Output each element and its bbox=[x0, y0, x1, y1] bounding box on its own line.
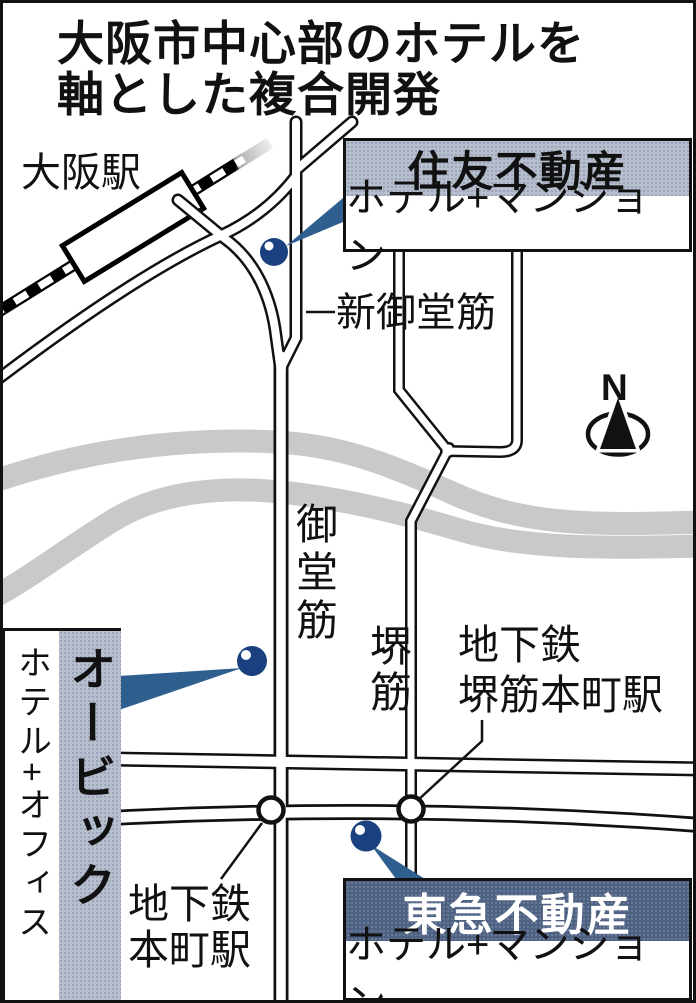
hommachi-line1: 地下鉄 bbox=[128, 881, 251, 927]
sakaisuji-label: 堺筋 bbox=[363, 624, 413, 716]
obic-pin bbox=[237, 646, 267, 676]
hommachi-line2: 本町駅 bbox=[128, 927, 251, 973]
sakaisuji-hommachi-station-label: 地下鉄 堺筋本町駅 bbox=[458, 620, 663, 720]
obic-company: オービック bbox=[59, 631, 121, 1000]
obic-project: ホテル+オフィス bbox=[5, 631, 59, 1000]
sakaisuji-hommachi-line2: 堺筋本町駅 bbox=[458, 670, 663, 720]
midosuji-label: 御堂筋 bbox=[289, 502, 339, 646]
tokyu-pin-highlight bbox=[355, 825, 365, 835]
shin-midosuji-label: 新御堂筋 bbox=[336, 290, 496, 337]
sumitomo-pin bbox=[260, 238, 288, 266]
river-lower-branch bbox=[0, 490, 696, 598]
map-infographic: 大阪市中心部のホテルを 軸とした複合開発 大阪駅 新御堂筋 御堂筋 堺筋 地下鉄… bbox=[0, 0, 696, 1003]
hommachi-station-label: 地下鉄 本町駅 bbox=[128, 881, 251, 974]
obic-pin-highlight bbox=[241, 650, 251, 660]
railway-fade bbox=[236, 126, 292, 182]
tokyu-pin bbox=[351, 821, 382, 852]
title-line2: 軸とした複合開発 bbox=[57, 69, 585, 120]
river bbox=[0, 441, 696, 598]
tokyu-project: ホテル+マンション bbox=[346, 941, 689, 998]
osaka-station-label: 大阪駅 bbox=[21, 150, 141, 197]
compass-n-label: N bbox=[601, 366, 628, 410]
hommachi-station-marker bbox=[259, 798, 284, 823]
sumitomo-callout: 住友不動産 ホテル+マンション bbox=[343, 138, 692, 252]
sakaisuji-hommachi-station-marker bbox=[399, 797, 424, 822]
leader-lines bbox=[221, 312, 482, 879]
sumitomo-project: ホテル+マンション bbox=[346, 196, 689, 249]
obic-pointer bbox=[119, 668, 242, 710]
leader-hommachi bbox=[221, 823, 262, 879]
obic-callout: ホテル+オフィス オービック bbox=[2, 628, 121, 1003]
sumitomo-pin-highlight bbox=[265, 242, 274, 251]
title-line1: 大阪市中心部のホテルを bbox=[57, 18, 585, 69]
page-title: 大阪市中心部のホテルを 軸とした複合開発 bbox=[57, 18, 585, 120]
sakaisuji-hommachi-line1: 地下鉄 bbox=[458, 620, 663, 670]
tokyu-callout: 東急不動産 ホテル+マンション bbox=[343, 878, 692, 1001]
